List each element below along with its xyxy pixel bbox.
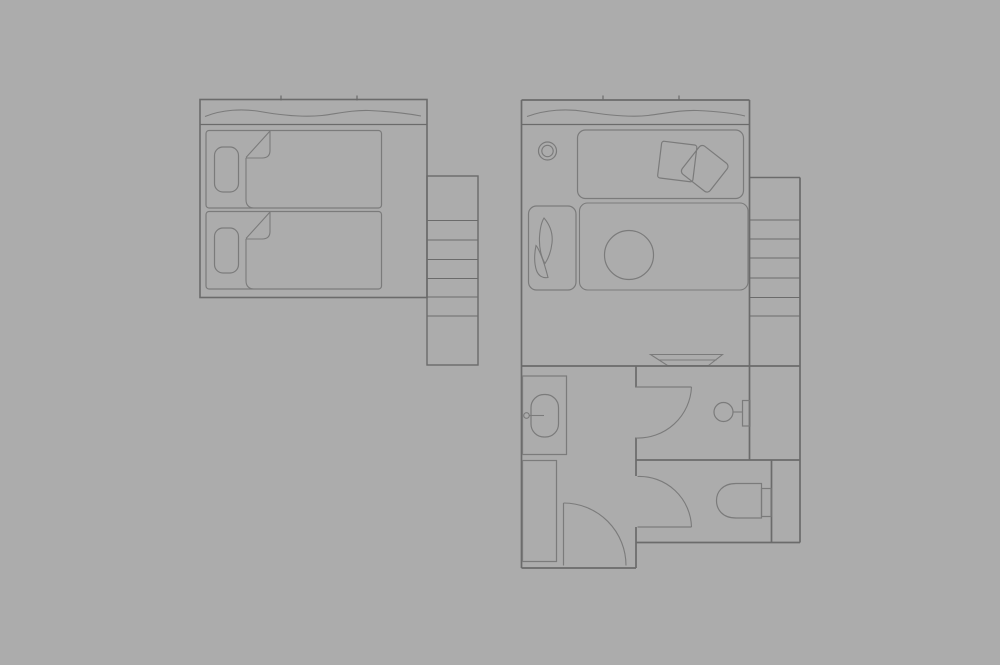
floor-plan-canvas: [0, 0, 1000, 665]
rug-area: [580, 203, 749, 290]
unit-a-outline: [200, 100, 427, 298]
daybed: [578, 130, 744, 199]
toilet-tank: [762, 489, 772, 517]
unit-a-curtain-wave: [205, 110, 421, 117]
bed-2-blanket-fold-diagonal: [246, 212, 270, 239]
round-table: [605, 231, 654, 280]
bed-1-pillow: [215, 147, 239, 192]
bed-2: [206, 212, 382, 290]
unit-a-shelf-column: [427, 176, 478, 365]
vanity-tap: [524, 413, 530, 419]
toilet-bowl: [717, 484, 762, 519]
floor-plan-page: [0, 0, 1000, 665]
daybed-cushion-1: [657, 141, 697, 182]
bed-2-blanket-edge: [246, 239, 254, 289]
wall-fixture-head: [714, 403, 733, 422]
ceiling-light-inner: [542, 145, 553, 156]
entry-door-swing-arc: [564, 503, 627, 566]
wc-door-swing-arc: [638, 476, 692, 527]
bed-2-pillow: [215, 228, 239, 273]
unit-b-curtain-wave: [527, 110, 745, 117]
bed-1-blanket-fold-diagonal: [246, 131, 270, 158]
shower-door-swing-arc: [636, 387, 692, 438]
daybed-cushion-2: [680, 144, 730, 194]
bed-1: [206, 131, 382, 209]
ceiling-light-outer: [539, 142, 557, 160]
bed-1-blanket-edge: [246, 158, 254, 208]
closet: [523, 461, 557, 562]
